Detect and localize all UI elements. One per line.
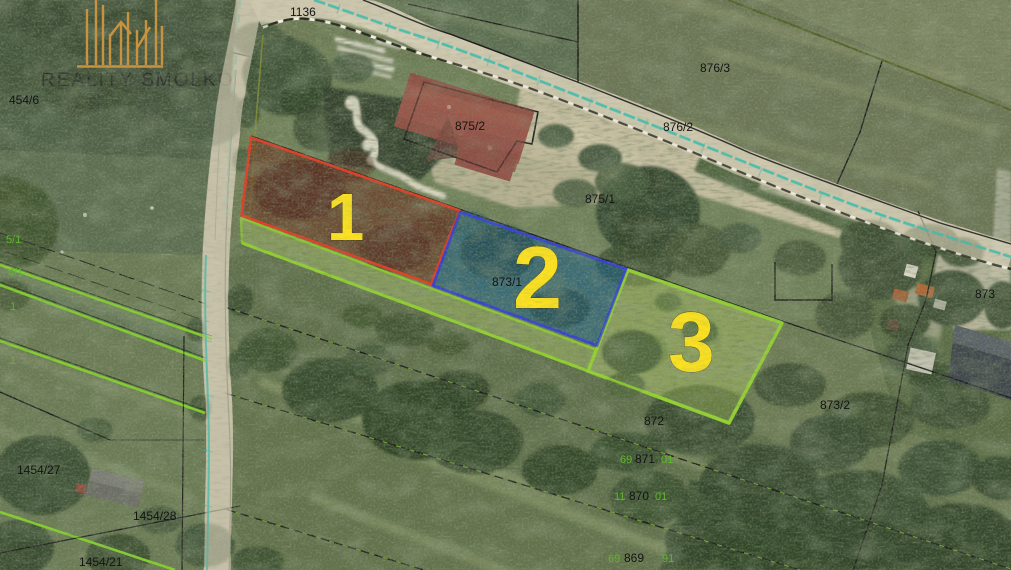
svg-text:873/2: 873/2 xyxy=(820,398,850,412)
svg-text:69: 69 xyxy=(608,553,620,565)
svg-text:1454/28: 1454/28 xyxy=(133,509,177,523)
svg-text:1: 1 xyxy=(10,301,16,313)
svg-text:1454/21: 1454/21 xyxy=(79,555,123,569)
svg-text:876/3: 876/3 xyxy=(700,61,730,75)
svg-text:1136: 1136 xyxy=(290,5,316,19)
svg-text:873/1: 873/1 xyxy=(492,275,522,289)
svg-text:69: 69 xyxy=(620,454,632,466)
svg-text:870: 870 xyxy=(629,489,649,503)
svg-text:873: 873 xyxy=(975,287,995,301)
svg-text:4/1: 4/1 xyxy=(8,267,23,279)
svg-text:875/2: 875/2 xyxy=(455,119,485,133)
svg-text:1: 1 xyxy=(327,180,364,255)
svg-text:01: 01 xyxy=(661,454,673,466)
svg-text:871: 871 xyxy=(635,452,655,466)
svg-text:454/6: 454/6 xyxy=(9,93,39,107)
svg-text:875/1: 875/1 xyxy=(585,192,615,206)
svg-text:869: 869 xyxy=(624,551,644,565)
svg-text:1: 1 xyxy=(10,355,16,367)
svg-text:3: 3 xyxy=(668,295,715,389)
svg-text:11: 11 xyxy=(614,491,625,503)
svg-text:876/2: 876/2 xyxy=(663,120,693,134)
svg-text:1454/27: 1454/27 xyxy=(17,463,61,477)
svg-text:872: 872 xyxy=(644,414,664,428)
svg-text:01: 01 xyxy=(655,491,667,503)
svg-text:5/1: 5/1 xyxy=(6,234,21,246)
svg-text:91: 91 xyxy=(662,553,674,565)
